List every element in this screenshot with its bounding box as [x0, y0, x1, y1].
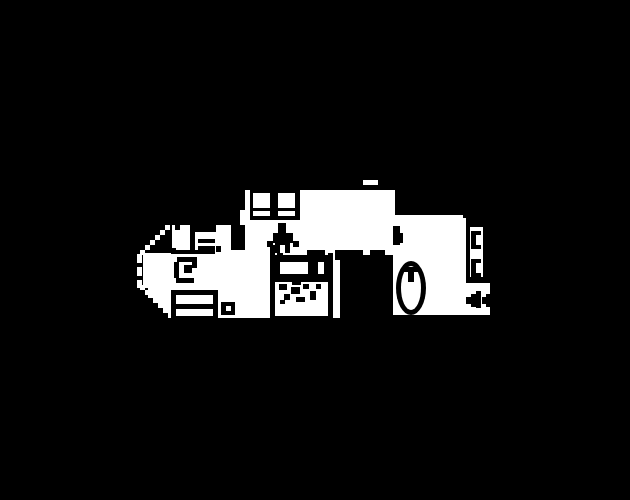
floorplan-canvas [0, 0, 630, 500]
floorplan-stage [0, 0, 630, 500]
